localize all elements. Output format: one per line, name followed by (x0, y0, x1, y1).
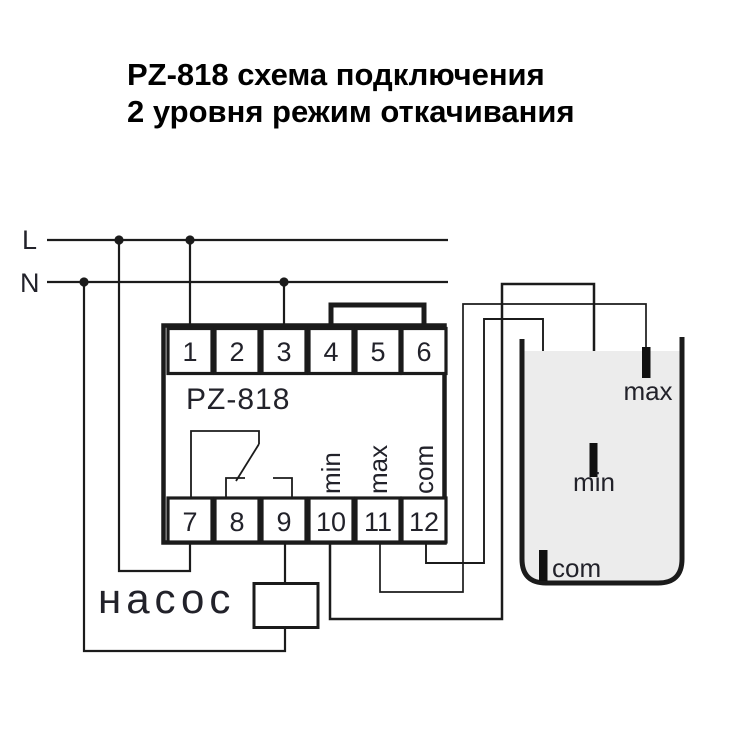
terminal-number-1: 1 (182, 337, 197, 367)
com-electrode (539, 550, 548, 581)
terminal-number-11: 11 (364, 507, 392, 537)
com-electrode-label: com (552, 553, 601, 583)
terminal-row-top: 1 2 3 4 5 6 (168, 329, 446, 374)
terminal-number-6: 6 (416, 337, 431, 367)
device-signal-labels: min max com (316, 445, 439, 494)
pump-box (254, 584, 318, 628)
terminal-number-5: 5 (370, 337, 385, 367)
terminal-number-4: 4 (323, 337, 338, 367)
terminal-number-12: 12 (409, 507, 439, 537)
min-electrode-label: min (573, 467, 615, 497)
device-pz818: 1 2 3 4 5 6 7 8 9 10 11 12 PZ-818 (164, 305, 447, 543)
pump-label: насос (98, 575, 235, 622)
device-label-max: max (363, 445, 393, 494)
terminal-row-bottom: 7 8 9 10 11 12 (168, 498, 446, 542)
device-label-min: min (316, 452, 346, 494)
line-l-label: L (22, 225, 37, 255)
diagram-title-line2: 2 уровня режим откачивания (127, 94, 575, 129)
wiring-diagram-page: PZ-818 схема подключения 2 уровня режим … (0, 0, 750, 750)
terminal-number-2: 2 (229, 337, 244, 367)
terminal-number-7: 7 (182, 507, 197, 537)
terminal-number-8: 8 (229, 507, 244, 537)
diagram-title-line1: PZ-818 схема подключения (127, 57, 545, 92)
jumper-terminal4-terminal6 (331, 305, 424, 326)
max-electrode (642, 347, 651, 378)
device-model-label: PZ-818 (186, 383, 290, 416)
terminal-number-10: 10 (316, 507, 346, 537)
device-label-com: com (409, 445, 439, 494)
wiring-diagram-canvas: PZ-818 схема подключения 2 уровня режим … (0, 0, 750, 750)
tank: max min com (522, 337, 682, 583)
pump: насос (98, 575, 318, 628)
terminal-number-9: 9 (276, 507, 291, 537)
terminal-number-3: 3 (276, 337, 291, 367)
max-electrode-label: max (623, 376, 672, 406)
line-n-label: N (20, 268, 40, 298)
